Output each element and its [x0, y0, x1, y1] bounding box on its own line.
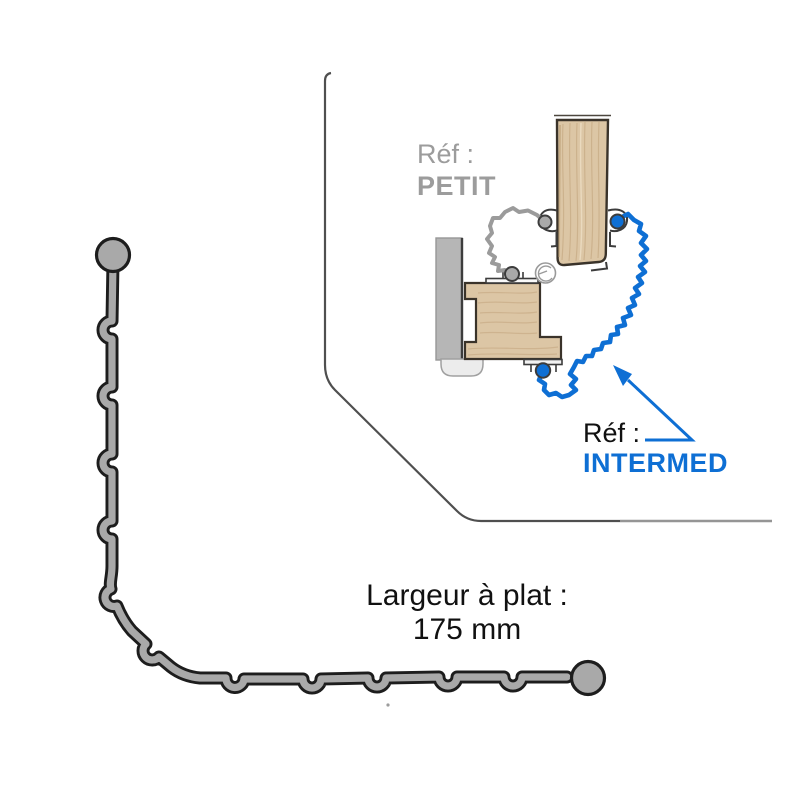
flat-width-caption: Largeur à plat : — [317, 579, 617, 613]
ref-intermed-prefix: Réf : — [583, 418, 728, 448]
ref-petit-name: PETIT — [417, 170, 496, 202]
frame-wood-section — [465, 272, 562, 372]
profile-end-bulb — [572, 662, 605, 695]
label-flat-width: Largeur à plat : 175 mm — [317, 579, 617, 647]
label-ref-petit: Réf : PETIT — [417, 138, 496, 202]
intermed-ball-door — [611, 215, 625, 229]
intermed-ball-frame — [536, 363, 550, 377]
wall-section — [436, 238, 462, 360]
screw-symbol-icon — [536, 263, 556, 283]
door-wood-section — [540, 116, 627, 271]
petit-ball-door — [539, 216, 552, 229]
ref-intermed-name: INTERMED — [583, 448, 728, 478]
diagram-canvas: Réf : PETIT Réf : INTERMED Largeur à pla… — [0, 0, 800, 800]
ref-petit-prefix: Réf : — [417, 138, 496, 170]
profile-top-bulb — [97, 239, 130, 272]
label-ref-intermed: Réf : INTERMED — [583, 418, 728, 478]
bead-pill — [441, 359, 483, 376]
petit-ball-frame — [505, 267, 519, 281]
speck-artifact — [386, 703, 389, 706]
seal-diagram-graphics — [0, 0, 800, 800]
flat-width-value: 175 mm — [317, 613, 617, 647]
